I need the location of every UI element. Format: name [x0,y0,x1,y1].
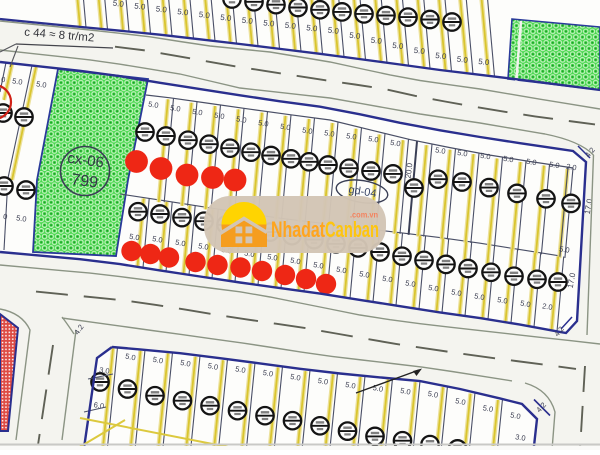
svg-text:5.0: 5.0 [263,18,276,28]
svg-text:5.0: 5.0 [170,103,182,114]
svg-text:5.0: 5.0 [336,265,348,276]
svg-text:5.0: 5.0 [390,138,402,149]
svg-text:5.0: 5.0 [267,252,279,263]
svg-text:5.0: 5.0 [290,256,302,267]
svg-text:5.0: 5.0 [327,26,340,36]
svg-text:5.0: 5.0 [280,122,292,133]
svg-text:5.0: 5.0 [12,76,24,86]
svg-text:3.0: 3.0 [515,432,527,443]
svg-text:5.0: 5.0 [526,157,538,168]
svg-text:5.0: 5.0 [457,148,469,159]
svg-text:5.0: 5.0 [349,31,362,41]
svg-text:5.0: 5.0 [428,283,440,294]
svg-text:3.0: 3.0 [99,365,111,376]
svg-text:5.0: 5.0 [549,160,561,171]
svg-text:5.0: 5.0 [306,23,319,33]
svg-text:5.0: 5.0 [16,213,28,223]
svg-text:Nhadat: Nhadat [271,217,325,242]
svg-text:5.0: 5.0 [302,125,314,136]
svg-text:5.0: 5.0 [155,4,168,14]
svg-text:5.0: 5.0 [152,234,164,245]
svg-text:5.0: 5.0 [368,134,380,145]
svg-text:5.0: 5.0 [220,13,233,23]
svg-text:5.0: 5.0 [148,99,160,110]
svg-text:5.0: 5.0 [359,269,371,280]
svg-text:5.0: 5.0 [474,291,486,302]
svg-text:5.0: 5.0 [214,111,226,122]
svg-text:2.0: 2.0 [566,162,578,173]
svg-text:5.0: 5.0 [134,1,147,11]
svg-text:5.0: 5.0 [405,278,417,289]
svg-text:5.0: 5.0 [392,41,405,51]
svg-text:5.0: 5.0 [324,128,336,139]
svg-text:5.0: 5.0 [503,154,515,165]
svg-text:5.0: 5.0 [36,79,48,89]
svg-text:Canban: Canban [325,217,379,242]
svg-text:5.0: 5.0 [456,55,469,65]
svg-text:5.0: 5.0 [478,57,491,67]
svg-text:5.0: 5.0 [175,238,187,249]
svg-text:5.0: 5.0 [192,107,204,118]
svg-text:5.0: 5.0 [435,145,447,156]
svg-text:5.0: 5.0 [198,241,210,252]
svg-text:5.0: 5.0 [236,114,248,125]
svg-text:5.0: 5.0 [129,232,141,243]
svg-text:5.0: 5.0 [413,46,426,56]
svg-text:5.0: 5.0 [480,151,492,162]
svg-text:5.0: 5.0 [435,51,448,61]
svg-text:5.0: 5.0 [497,295,509,306]
svg-text:5.0: 5.0 [198,10,211,20]
svg-text:5.0: 5.0 [258,118,270,129]
svg-text:5.0: 5.0 [313,260,325,271]
svg-text:5.0: 5.0 [451,287,463,298]
svg-text:5.0: 5.0 [346,131,358,142]
svg-text:5.0: 5.0 [177,7,190,17]
svg-text:5.0: 5.0 [370,36,383,46]
svg-text:5.0: 5.0 [382,274,394,285]
svg-text:5.0: 5.0 [559,244,571,255]
svg-text:2.0: 2.0 [542,301,554,312]
svg-text:5.0: 5.0 [284,21,297,31]
svg-text:5.0: 5.0 [112,0,125,9]
svg-text:.com.vn: .com.vn [350,211,378,220]
svg-text:5.0: 5.0 [520,299,532,310]
svg-text:5.0: 5.0 [241,16,254,26]
